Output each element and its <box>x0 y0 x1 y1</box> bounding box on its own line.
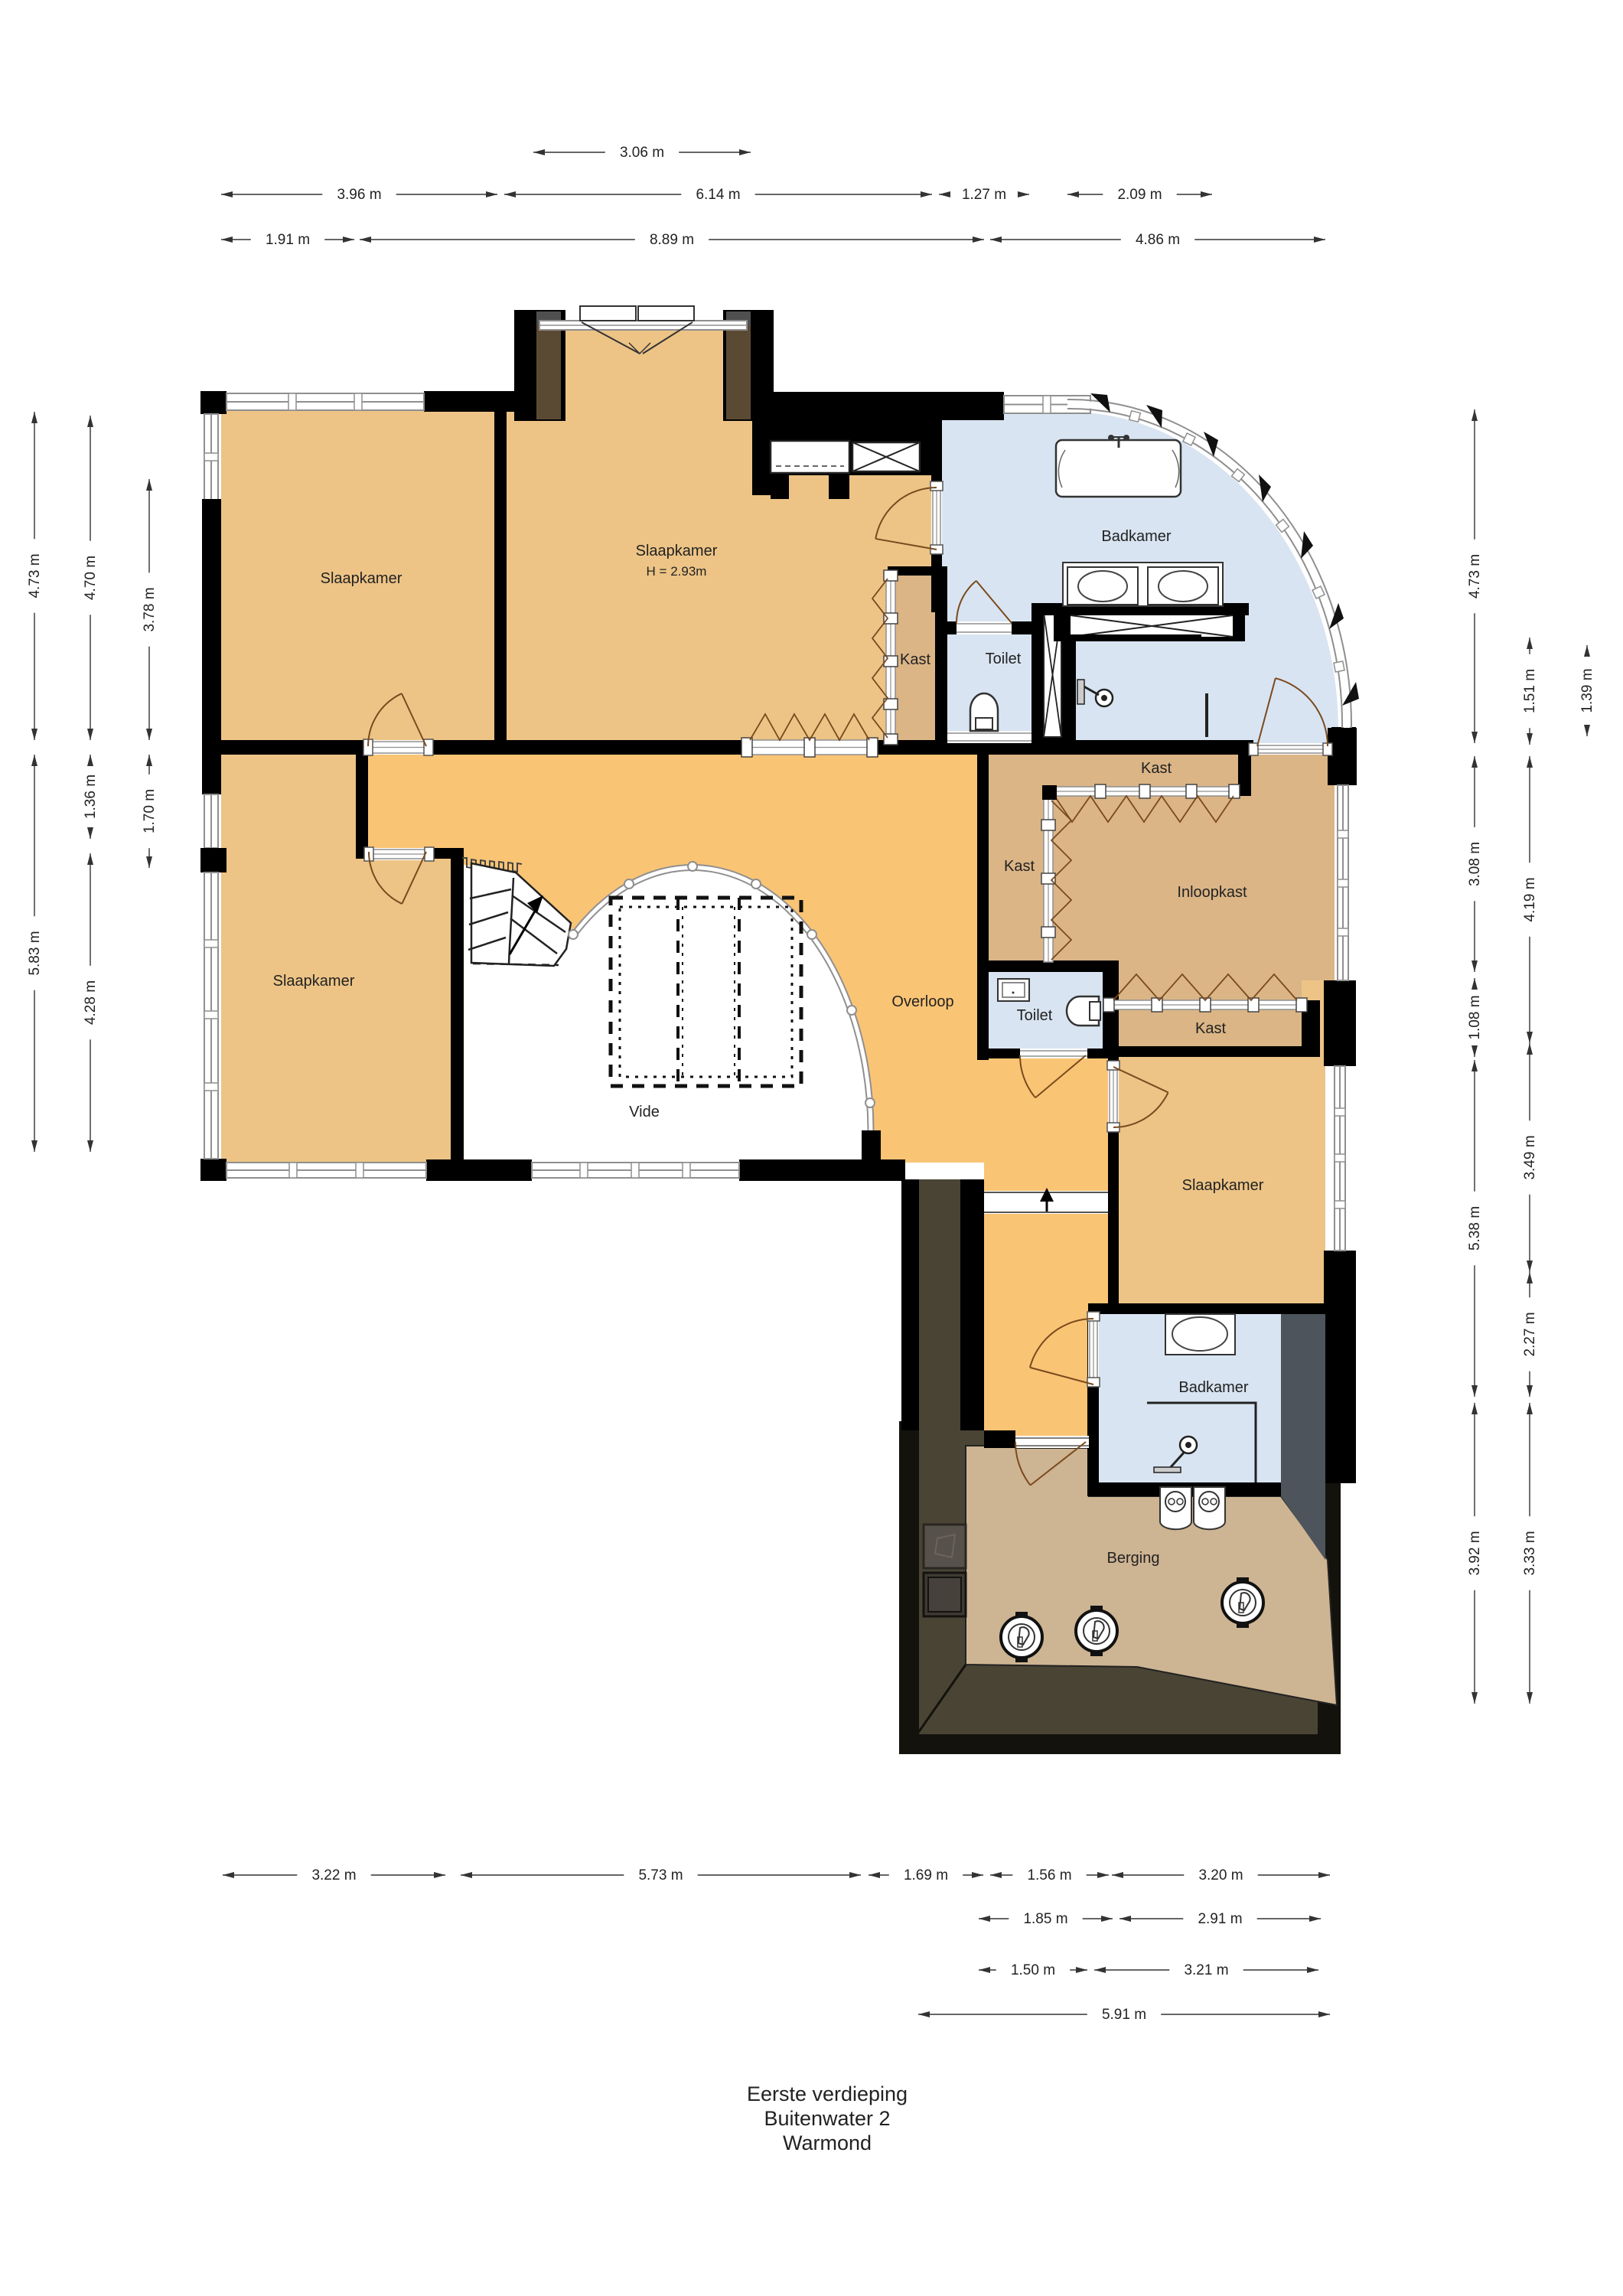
svg-text:1.08 m: 1.08 m <box>1467 995 1483 1039</box>
svg-text:1.85 m: 1.85 m <box>1023 1911 1067 1927</box>
svg-text:Badkamer: Badkamer <box>1101 528 1171 545</box>
svg-text:1.69 m: 1.69 m <box>904 1867 948 1883</box>
svg-text:Badkamer: Badkamer <box>1178 1379 1248 1396</box>
svg-text:6.14 m: 6.14 m <box>696 187 740 203</box>
svg-text:Toilet: Toilet <box>1017 1007 1053 1024</box>
svg-text:Slaapkamer: Slaapkamer <box>1182 1177 1264 1194</box>
svg-text:Kast: Kast <box>1004 858 1035 875</box>
svg-text:5.91 m: 5.91 m <box>1102 2007 1146 2023</box>
svg-text:4.70 m: 4.70 m <box>83 556 99 600</box>
svg-text:1.91 m: 1.91 m <box>266 232 310 248</box>
svg-text:4.19 m: 4.19 m <box>1522 877 1538 921</box>
svg-text:4.86 m: 4.86 m <box>1136 232 1180 248</box>
svg-text:5.73 m: 5.73 m <box>638 1867 683 1883</box>
svg-text:1.56 m: 1.56 m <box>1027 1867 1071 1883</box>
svg-text:Overloop: Overloop <box>891 993 953 1010</box>
svg-text:Toilet: Toilet <box>986 651 1022 667</box>
svg-text:1.39 m: 1.39 m <box>1579 668 1595 713</box>
svg-text:Kast: Kast <box>900 651 930 668</box>
svg-text:Vide: Vide <box>629 1104 660 1120</box>
svg-text:1.36 m: 1.36 m <box>83 775 99 819</box>
svg-text:1.51 m: 1.51 m <box>1522 669 1538 713</box>
svg-text:4.28 m: 4.28 m <box>83 980 99 1025</box>
svg-text:3.21 m: 3.21 m <box>1184 1962 1228 1978</box>
svg-text:5.38 m: 5.38 m <box>1467 1206 1483 1251</box>
svg-text:3.22 m: 3.22 m <box>311 1867 356 1883</box>
svg-text:3.78 m: 3.78 m <box>142 587 158 631</box>
svg-text:4.73 m: 4.73 m <box>1467 554 1483 598</box>
svg-text:3.92 m: 3.92 m <box>1467 1531 1483 1575</box>
svg-text:Buitenwater 2: Buitenwater 2 <box>764 2107 890 2130</box>
svg-text:Kast: Kast <box>1141 760 1172 777</box>
svg-text:Slaapkamer: Slaapkamer <box>321 570 402 587</box>
svg-text:3.08 m: 3.08 m <box>1467 842 1483 886</box>
svg-text:3.96 m: 3.96 m <box>337 187 381 203</box>
svg-text:1.27 m: 1.27 m <box>962 187 1006 203</box>
svg-text:2.91 m: 2.91 m <box>1198 1911 1242 1927</box>
svg-text:Warmond: Warmond <box>783 2131 872 2154</box>
svg-text:Inloopkast: Inloopkast <box>1177 884 1247 901</box>
svg-text:1.70 m: 1.70 m <box>142 789 158 833</box>
svg-text:3.06 m: 3.06 m <box>620 145 664 161</box>
svg-text:1.50 m: 1.50 m <box>1011 1962 1055 1978</box>
svg-text:5.83 m: 5.83 m <box>27 931 43 975</box>
svg-text:Kast: Kast <box>1195 1020 1226 1037</box>
svg-text:H = 2.93m: H = 2.93m <box>647 564 707 579</box>
svg-text:3.49 m: 3.49 m <box>1522 1135 1538 1179</box>
svg-text:Berging: Berging <box>1107 1550 1160 1567</box>
svg-text:2.09 m: 2.09 m <box>1117 187 1162 203</box>
svg-text:Eerste verdieping: Eerste verdieping <box>747 2082 908 2105</box>
svg-text:3.20 m: 3.20 m <box>1198 1867 1243 1883</box>
svg-text:Slaapkamer: Slaapkamer <box>273 973 355 990</box>
svg-text:Slaapkamer: Slaapkamer <box>636 543 718 559</box>
svg-text:3.33 m: 3.33 m <box>1522 1531 1538 1575</box>
svg-text:4.73 m: 4.73 m <box>27 553 43 598</box>
svg-text:8.89 m: 8.89 m <box>650 232 694 248</box>
svg-text:2.27 m: 2.27 m <box>1522 1312 1538 1356</box>
